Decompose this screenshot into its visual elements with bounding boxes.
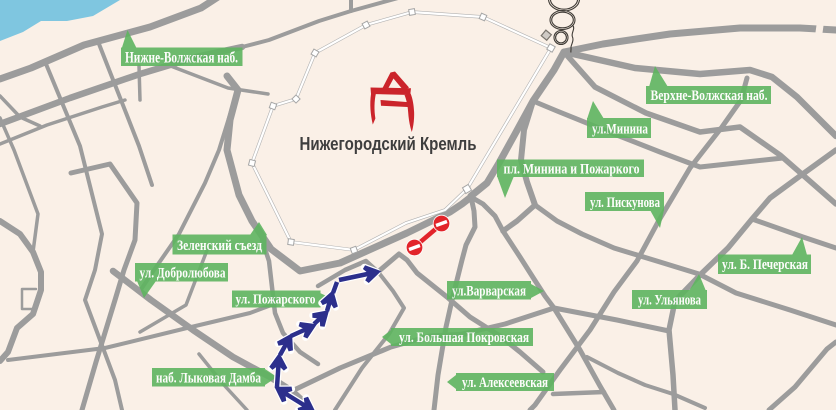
svg-text:ул. Б. Печерская: ул. Б. Печерская — [722, 257, 808, 273]
svg-text:ул. Добролюбова: ул. Добролюбова — [140, 266, 227, 282]
svg-text:Зеленский съезд: Зеленский съезд — [177, 238, 262, 254]
svg-text:пл. Минина и Пожаркого: пл. Минина и Пожаркого — [504, 162, 640, 178]
svg-text:ул. Пожарского: ул. Пожарского — [236, 293, 316, 308]
svg-text:наб. Лыковая Дамба: наб. Лыковая Дамба — [156, 371, 262, 387]
svg-text:Верхне-Волжская наб.: Верхне-Волжская наб. — [651, 88, 768, 104]
svg-text:ул. Большая Покровская: ул. Большая Покровская — [399, 330, 529, 346]
svg-text:Нижне-Волжская наб.: Нижне-Волжская наб. — [125, 50, 238, 67]
svg-text:ул.Варварская: ул.Варварская — [452, 284, 526, 300]
svg-text:ул. Пискунова: ул. Пискунова — [590, 195, 660, 211]
svg-text:ул. Ульянова: ул. Ульянова — [638, 293, 701, 309]
svg-text:ул. Алексеевская: ул. Алексеевская — [462, 375, 548, 391]
svg-text:Нижегородский Кремль: Нижегородский Кремль — [300, 134, 477, 154]
svg-text:ул.Минина: ул.Минина — [592, 122, 649, 138]
